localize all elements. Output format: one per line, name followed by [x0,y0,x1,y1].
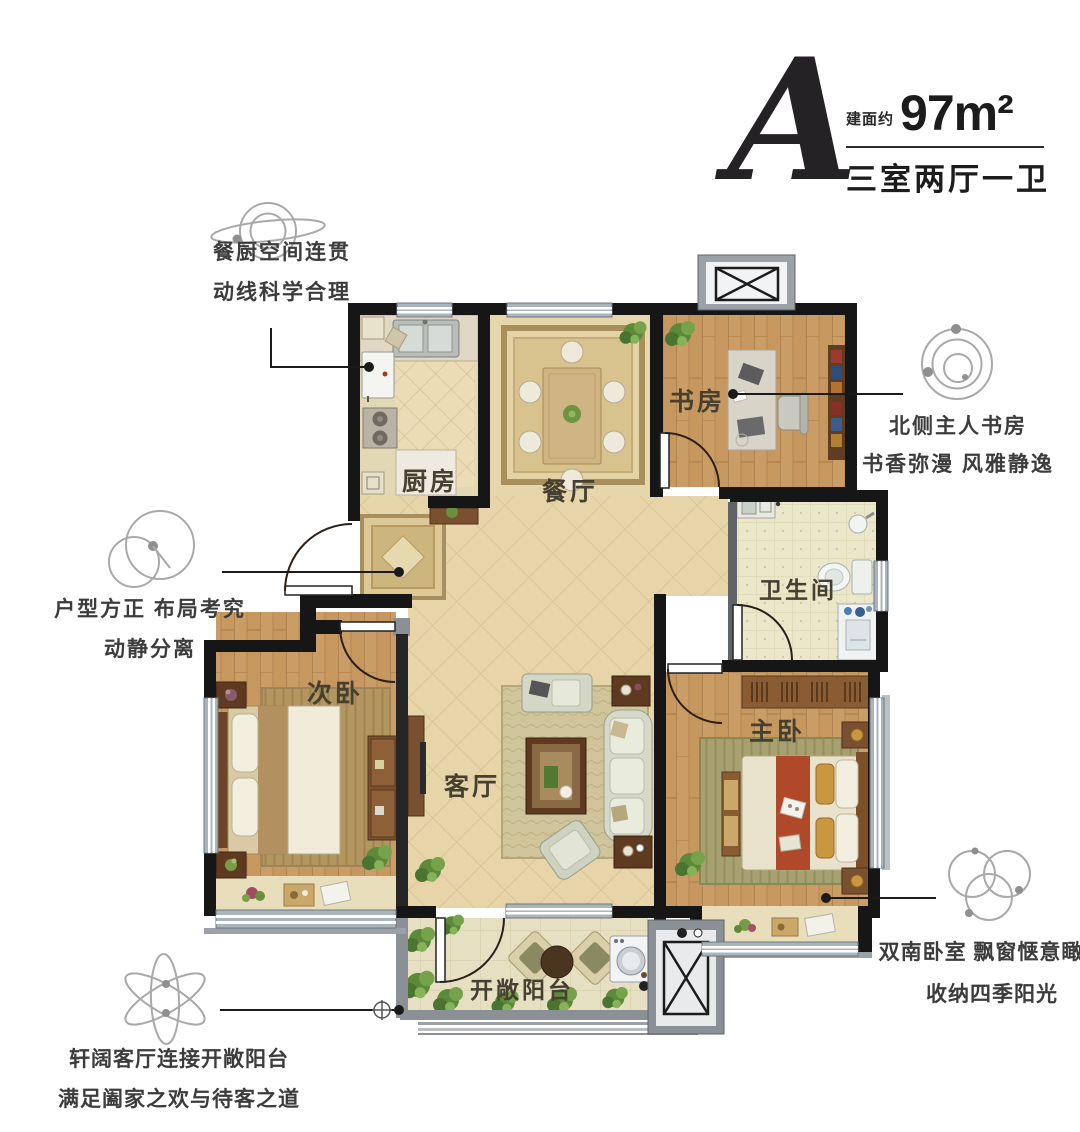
callout-master-bedroom-line1: 双南卧室 飘窗惬意瞰景 [872,932,1080,974]
callout-study: 北侧主人书房 书香弥漫 风雅静逸 [850,408,1066,484]
master-bedroom-label: 主卧 [749,718,805,746]
dining-label: 餐厅 [542,478,598,506]
secondary-bedroom-label: 次卧 [307,680,363,708]
callout-living-balcony-line1: 轩阔客厅连接开敞阳台 [56,1040,302,1080]
callout-living-balcony: 轩阔客厅连接开敞阳台 满足阖家之欢与待客之道 [56,1040,302,1120]
callout-study-line1: 北侧主人书房 [850,408,1066,446]
stair-shaft-bottom [648,920,724,1034]
callout-kitchen-dining: 餐厨空间连贯 动线科学合理 [170,233,394,313]
callout-layout-line1: 户型方正 布局考究 [38,590,262,630]
layout-type: 三室两厅一卫 [846,154,1051,199]
callout-kitchen-dining-line1: 餐厨空间连贯 [170,233,394,273]
callout-layout: 户型方正 布局考究 动静分离 [38,590,262,670]
area-value: 97m² [900,88,1013,138]
overlapping-circles-icon [109,511,194,587]
callout-layout-line2: 动静分离 [38,630,262,670]
kitchen-label: 厨房 [402,467,458,496]
atom-icon [119,954,211,1045]
bathroom-label: 卫生间 [759,577,837,603]
study-label: 书房 [669,387,725,416]
area-row: 建面约 97m² [846,88,1051,138]
elevator-shaft-top [698,255,795,310]
dining-room [504,321,647,491]
survey-mark-icon [372,1000,392,1020]
title-block: A 建面约 97m² 三室两厅一卫 [718,40,1058,210]
concentric-orbits-icon [922,324,992,399]
title-info: 建面约 97m² 三室两厅一卫 [846,88,1051,199]
title-divider [846,146,1044,148]
balcony-label: 开敞阳台 [470,977,574,1003]
plan-letter: A [728,40,858,200]
callout-study-line2: 书香弥漫 风雅静逸 [850,446,1066,484]
callout-living-balcony-line2: 满足阖家之欢与待客之道 [56,1080,302,1120]
triple-circles-icon [949,848,1030,921]
living-room-label: 客厅 [444,772,500,801]
callout-master-bedroom-line2: 收纳四季阳光 [872,974,1080,1016]
area-prefix: 建面约 [846,108,894,138]
floorplan-page: 厨房 餐厅 书房 卫生间 次卧 客厅 主卧 开敞阳台 [0,0,1080,1132]
callout-kitchen-dining-line2: 动线科学合理 [170,273,394,313]
callout-master-bedroom: 双南卧室 飘窗惬意瞰景 收纳四季阳光 [872,932,1080,1016]
